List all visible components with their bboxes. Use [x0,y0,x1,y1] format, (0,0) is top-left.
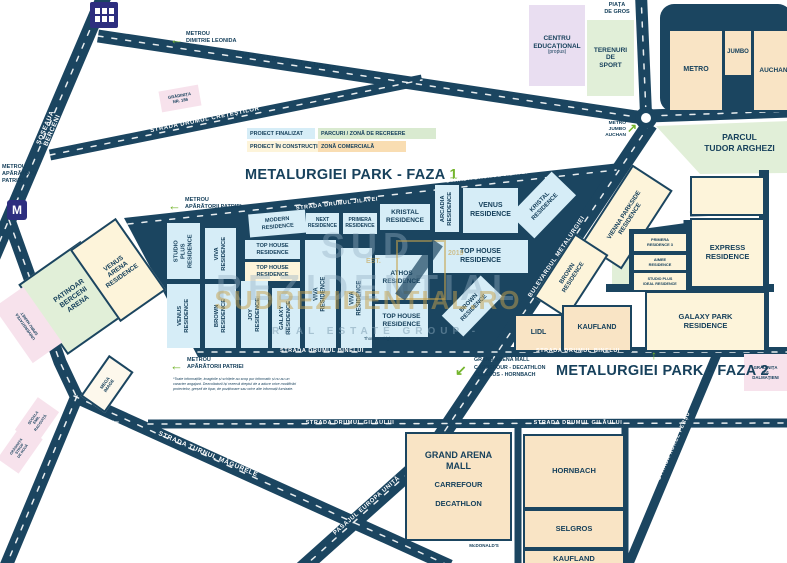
block-aimee-residence: AIMEE RESIDENCE [633,254,687,271]
depot-dot [95,16,100,22]
block-kristal-residence-1: KRISTAL RESIDENCE [380,204,430,230]
metro-m-icon: M [7,200,27,220]
arrow-ne-icon: ↗ [627,122,637,134]
block-express-residence: EXPRESS RESIDENCE [690,218,765,288]
poi-metrou-dimitrie-leonida: METROU DIMITRIE LEONIDA [186,31,236,45]
street-label-gilaului-2: STRADA DRUMUL GILĂULUI [523,420,633,426]
block-athos-residence: ATHOS RESIDENCE [375,255,428,300]
poi-metrou-aparatorii-south: METROU APĂRĂTORII PATRIEI [187,357,244,371]
arrow-sw-icon: ↙ [455,363,467,377]
poi-metro-jumbo-auchan: METRO JUMBO AUCHAN [592,121,626,140]
block-viva-residence-w: VIVA RESIDENCE [205,228,236,279]
block-studio-plus-residence: STUDIO PLUS RESIDENCE [167,223,200,279]
store-hornbach: HORNBACH [523,434,625,509]
store-carrefour: CARREFOUR [435,481,483,490]
legend-zona-comerciala: ZONĂ COMERCIALĂ [318,141,406,152]
block-label: VIVA RESIDENCE [214,237,228,271]
store-selgros: SELGROS [523,509,625,549]
block-joy-residence: JOY RESIDENCE [241,281,268,348]
centru-sub-label: (propus) [548,50,567,56]
metro-depot-icon [90,2,118,28]
grand-arena-mall: GRAND ARENA MALL CARREFOUR DECATHLON [405,432,512,541]
arrow-left-icon: ← [170,33,183,46]
store-jumbo: JUMBO [723,29,753,77]
title-faza-1-text: METALURGIEI PARK - FAZA [245,167,446,183]
depot-dot [102,16,107,22]
depot-dot [95,8,100,14]
block-label: GRĂDINIȚA STROP DE ROUĂ [9,437,30,460]
block-top-house-3: TOP HOUSE RESIDENCE [375,304,428,337]
street-label-binelui-2: STRADA DRUMUL BINELUI [523,348,633,354]
block-galaxy-residence: GALAXY RESIDENCE [272,288,300,348]
store-auchan: AUCHAN [752,29,787,112]
store-kaufland-2: KAUFLAND [523,549,625,563]
block-viva-residence-1: VIVA RESIDENCE [305,240,336,348]
block-label: GALAXY RESIDENCE [279,301,293,335]
block-label: VIVA RESIDENCE [313,276,327,311]
legend-proiect-finalizat: PROIECT FINALIZAT [247,128,315,139]
store-lidl: LIDL [514,314,563,352]
block-primera-residence: PRIMERA RESIDENCE [343,213,377,234]
depot-dot [109,8,114,14]
title-faza-2-text: METALURGIEI PARK - FAZA [556,363,757,379]
arrow-left-icon: ← [170,359,183,372]
block-next-residence: NEXT RESIDENCE [306,213,339,234]
block-unlabeled [690,176,765,216]
store-decathlon: DECATHLON [435,500,482,509]
block-label: STUDIO PLUS RESIDENCE [173,234,193,268]
arrow-up-icon: ↑ [651,349,657,361]
block-top-house-2: TOP HOUSE RESIDENCE [245,262,300,281]
title-faza-2-number: 2 [761,363,769,379]
poi-thomas-midgley: Thomas Midgley Jr. [358,336,406,341]
centru-educational: CENTRU EDUCAȚIONAL (propus) [529,5,585,86]
block-brown-residence-w: BROWN RESIDENCE [205,284,236,348]
block-label: MEGA IMAGE [98,375,115,393]
roundabout-center [641,113,651,123]
block-label: VIVA RESIDENCE [349,280,363,315]
poi-metrou-aparatorii-west: METROU APĂRĂTORII PATRIEI [2,164,36,185]
title-faza-1: METALURGIEI PARK - FAZA1 [245,167,458,183]
block-label: ARCADIA RESIDENCE [440,192,454,226]
street-label-gilaului-1: STRADA DRUMUL GILĂULUI [295,420,405,426]
store-kaufland: KAUFLAND [562,305,632,352]
block-top-house-1: TOP HOUSE RESIDENCE [245,240,300,259]
depot-dot [102,8,107,14]
terenuri-de-sport: TERENURI DE SPORT [587,20,634,96]
block-label: JOY RESIDENCE [248,298,262,332]
poi-metrou-aparatorii-mid: METROU APĂRĂTORII PATRIEI [185,197,242,211]
legend-parcuri: PARCURI / ZONĂ DE RECREERE [318,128,436,139]
mall-title: GRAND ARENA MALL [425,450,492,471]
block-viva-residence-2: VIVA RESIDENCE [341,248,372,348]
disclaimer-text: *Toate informațiile, imaginile și schițe… [173,377,303,392]
depot-dot [109,16,114,22]
poi-parcul-tudor-arghezi: PARCUL TUDOR ARGHEZI [692,132,787,154]
block-primera-residence-3: PRIMERA RESIDENCE 3 [633,233,687,252]
street-label-binelui-1: STRADA DRUMUL BINELUI [267,348,377,354]
centru-label: CENTRU EDUCAȚIONAL [533,35,580,50]
block-studio-plus-ideal: STUDIO PLUS IDEAL RESIDENCE [633,272,687,291]
block-arcadia-residence: ARCADIA RESIDENCE [435,185,459,232]
block-label: VENUS RESIDENCE [177,299,191,333]
block-label: BROWN RESIDENCE [214,299,228,333]
poi-grand-arena-mall: GRAND ARENA MALL CARREFOUR - DECATHLON S… [474,357,545,380]
block-top-house-4: TOP HOUSE RESIDENCE [433,240,528,273]
arrow-left-icon: ← [168,199,181,212]
poi-piata-de-gros: PIAȚA DE GROS [598,2,636,16]
metalurgiei-park-map: STUDIO PLUS RESIDENCE VIVA RESIDENCE VEN… [0,0,787,563]
title-faza-2: METALURGIEI PARK - FAZA2 [556,363,769,379]
poi-mcdonalds: McDONALD'S [462,543,506,549]
block-label: UNIVERSITATEA SPIRU HARET [15,309,41,340]
store-metro: METRO [668,29,724,112]
block-venus-residence-c: VENUS RESIDENCE [463,188,518,233]
block-galaxy-park-residence: GALAXY PARK RESIDENCE [645,291,766,352]
block-venus-residence-w: VENUS RESIDENCE [167,284,200,348]
